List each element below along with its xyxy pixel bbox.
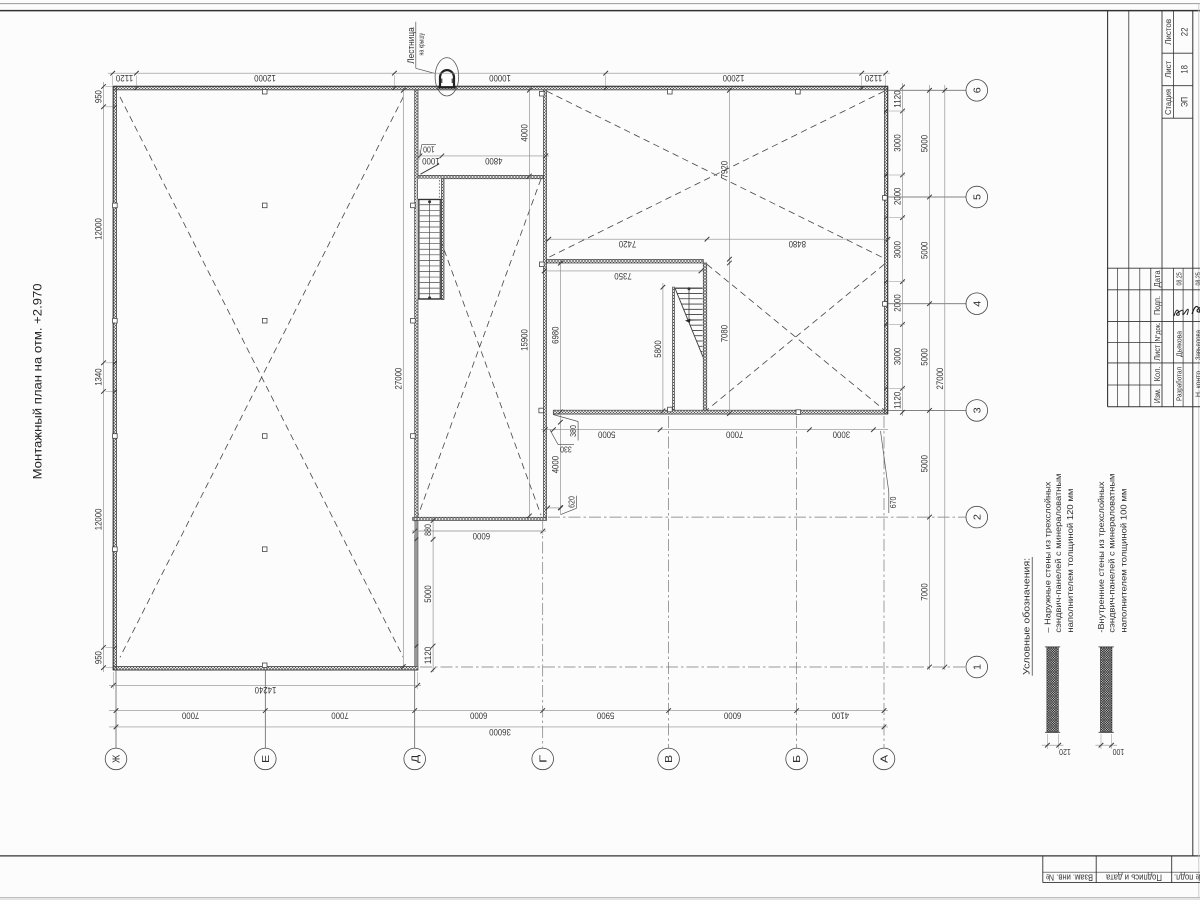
svg-text:3000: 3000	[893, 241, 904, 258]
svg-text:18: 18	[1179, 65, 1189, 74]
svg-text:Подп.: Подп.	[1153, 296, 1162, 315]
svg-text:12000: 12000	[254, 72, 276, 83]
svg-text:на крышу: на крышу	[419, 33, 426, 56]
svg-text:12000: 12000	[723, 72, 745, 83]
svg-text:5000: 5000	[423, 585, 434, 602]
svg-text:5000: 5000	[920, 348, 931, 365]
svg-text:Стадия: Стадия	[1164, 89, 1173, 115]
svg-text:Монтажный план на отм. +2.970: Монтажный план на отм. +2.970	[31, 283, 45, 479]
svg-text:Условные обозначения:: Условные обозначения:	[1022, 558, 1032, 675]
svg-text:5000: 5000	[920, 242, 931, 259]
svg-text:Лестница: Лестница	[405, 27, 416, 64]
svg-text:сэндвич-панелей с минераловатн: сэндвич-панелей с минераловатным	[1108, 474, 1117, 633]
svg-text:27000: 27000	[393, 368, 404, 390]
svg-text:7000: 7000	[920, 583, 931, 600]
svg-text:1340: 1340	[94, 368, 105, 385]
svg-text:Б: Б	[792, 754, 803, 763]
svg-text:6: 6	[973, 87, 984, 93]
svg-text:Г: Г	[538, 754, 549, 763]
svg-text:3000: 3000	[893, 348, 904, 365]
svg-text:Инв. № подл.: Инв. № подл.	[1174, 872, 1200, 882]
svg-text:6000: 6000	[724, 710, 741, 721]
svg-text:10000: 10000	[489, 72, 511, 83]
svg-text:3000: 3000	[833, 429, 850, 440]
svg-text:3: 3	[973, 407, 984, 413]
svg-text:2000: 2000	[893, 188, 904, 205]
svg-text:6980: 6980	[551, 327, 562, 344]
svg-text:N°док.: N°док.	[1153, 323, 1162, 342]
svg-text:12000: 12000	[94, 509, 105, 531]
svg-text:6000: 6000	[473, 530, 490, 541]
svg-text:5: 5	[973, 194, 984, 200]
svg-text:330: 330	[560, 444, 572, 454]
svg-text:А: А	[880, 755, 891, 763]
svg-text:Завьялова: Завьялова	[1194, 329, 1200, 360]
svg-text:100: 100	[1112, 747, 1124, 757]
svg-text:100: 100	[423, 144, 435, 154]
svg-text:1120: 1120	[893, 90, 904, 107]
svg-text:1000: 1000	[422, 155, 439, 166]
svg-text:620: 620	[567, 496, 577, 508]
svg-text:14240: 14240	[255, 684, 277, 695]
svg-text:08.25: 08.25	[1194, 272, 1200, 285]
svg-text:4800: 4800	[485, 155, 502, 166]
svg-text:950: 950	[94, 90, 105, 103]
svg-text:7920: 7920	[720, 161, 731, 178]
svg-text:5900: 5900	[597, 710, 614, 721]
svg-text:1120: 1120	[423, 647, 434, 664]
svg-text:Изм.: Изм.	[1153, 388, 1162, 403]
svg-text:1120: 1120	[865, 72, 882, 83]
svg-text:наполнителем толщиной 120 мм: наполнителем толщиной 120 мм	[1066, 489, 1075, 633]
svg-text:3000: 3000	[893, 134, 904, 151]
svg-text:-Внутренние стены из трехслойн: -Внутренние стены из трехслойных	[1097, 482, 1106, 633]
svg-text:сэндвич-панелей с минераловатн: сэндвич-панелей с минераловатным	[1054, 474, 1063, 633]
svg-text:7000: 7000	[726, 429, 743, 440]
svg-text:6000: 6000	[470, 710, 487, 721]
svg-text:2000: 2000	[893, 294, 904, 311]
svg-text:7420: 7420	[619, 238, 636, 249]
svg-text:120: 120	[1059, 747, 1071, 757]
svg-text:2: 2	[973, 514, 984, 520]
svg-text:Дьякова: Дьякова	[1174, 330, 1183, 357]
svg-text:5000: 5000	[920, 135, 931, 152]
svg-text:В: В	[664, 755, 675, 763]
svg-text:8480: 8480	[789, 238, 806, 249]
svg-text:4000: 4000	[551, 456, 562, 473]
svg-text:ЭП: ЭП	[1179, 97, 1189, 107]
svg-text:наполнителем толщиной 100 мм: наполнителем толщиной 100 мм	[1119, 489, 1128, 633]
svg-text:Кол.: Кол.	[1153, 366, 1162, 381]
svg-text:670: 670	[888, 496, 898, 508]
svg-text:950: 950	[94, 651, 105, 664]
svg-text:27000: 27000	[935, 368, 946, 390]
svg-text:Взам. инв. №: Взам. инв. №	[1046, 872, 1093, 882]
svg-text:Д: Д	[410, 755, 421, 763]
svg-text:4: 4	[973, 300, 984, 306]
svg-text:Н. контр: Н. контр	[1194, 371, 1200, 397]
svg-text:36000: 36000	[489, 726, 511, 737]
svg-text:08.25: 08.25	[1174, 272, 1183, 285]
svg-text:1120: 1120	[116, 72, 133, 83]
svg-text:22: 22	[1179, 28, 1189, 37]
svg-text:Ж: Ж	[112, 754, 123, 763]
svg-text:7000: 7000	[182, 710, 199, 721]
svg-text:7080: 7080	[720, 325, 731, 342]
svg-text:4000: 4000	[520, 124, 531, 141]
svg-text:5800: 5800	[653, 340, 664, 357]
svg-text:12000: 12000	[94, 218, 105, 240]
svg-text:Лист: Лист	[1153, 344, 1162, 360]
svg-text:Е: Е	[261, 755, 272, 763]
svg-text:Лист: Лист	[1164, 61, 1173, 78]
svg-text:Подпись и дата: Подпись и дата	[1106, 872, 1162, 882]
svg-text:7000: 7000	[331, 710, 348, 721]
svg-text:5000: 5000	[920, 455, 931, 472]
svg-text:– Наружные стены из трехслойны: – Наружные стены из трехслойных	[1044, 482, 1053, 633]
svg-text:Листов: Листов	[1164, 19, 1173, 45]
svg-text:15900: 15900	[520, 329, 531, 351]
svg-text:Разработал: Разработал	[1174, 367, 1183, 401]
svg-text:1120: 1120	[893, 392, 904, 409]
svg-text:4100: 4100	[832, 710, 849, 721]
svg-text:5000: 5000	[598, 429, 615, 440]
svg-text:1: 1	[973, 664, 984, 670]
svg-text:7350: 7350	[614, 270, 631, 281]
svg-text:880: 880	[423, 524, 433, 536]
svg-text:Дата: Дата	[1153, 270, 1162, 288]
svg-text:380: 380	[568, 425, 578, 437]
